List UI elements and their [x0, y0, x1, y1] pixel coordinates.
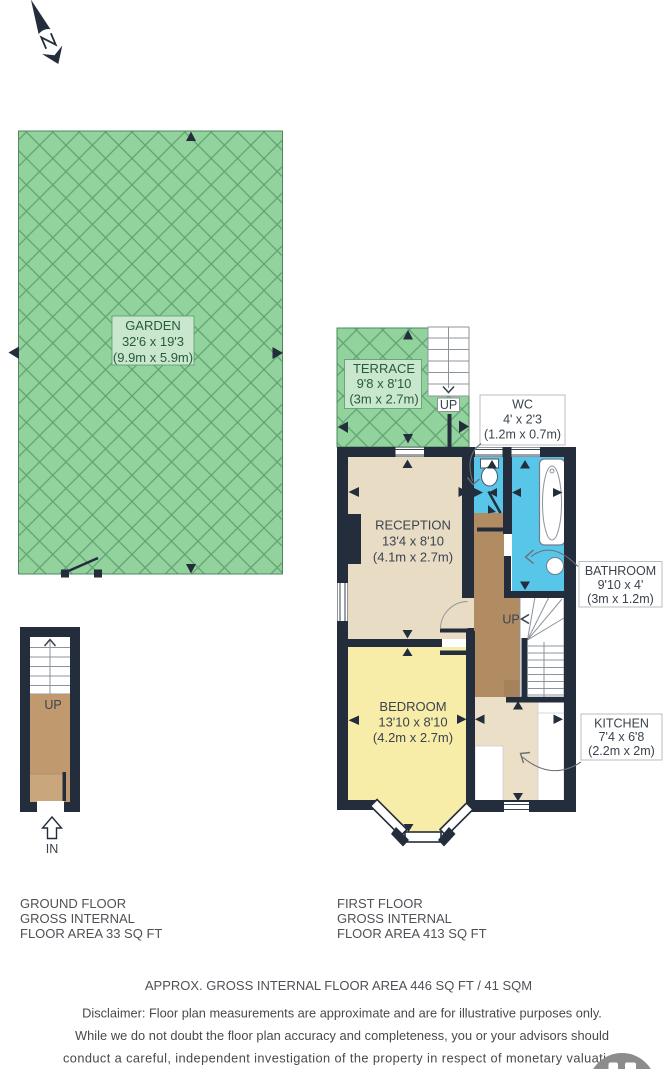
svg-text:GROSS INTERNAL: GROSS INTERNAL — [20, 911, 135, 926]
svg-text:(4.2m x 2.7m): (4.2m x 2.7m) — [373, 730, 453, 745]
svg-text:4' x 2'3: 4' x 2'3 — [503, 413, 542, 427]
svg-text:(2.2m x 2m): (2.2m x 2m) — [588, 744, 655, 758]
svg-text:While we do not doubt the floo: While we do not doubt the floor plan acc… — [75, 1028, 609, 1043]
svg-text:UP: UP — [502, 613, 519, 627]
svg-text:TERRACE: TERRACE — [353, 361, 415, 376]
svg-text:RECEPTION: RECEPTION — [375, 518, 451, 533]
svg-text:WC: WC — [512, 398, 533, 412]
svg-text:32'6 x 19'3: 32'6 x 19'3 — [122, 334, 184, 349]
svg-text:BEDROOM: BEDROOM — [379, 699, 446, 714]
svg-text:Disclaimer: Floor plan measure: Disclaimer: Floor plan measurements are … — [82, 1006, 602, 1021]
svg-text:conduct a careful, independent: conduct a careful, independent investiga… — [63, 1051, 621, 1066]
svg-text:FLOOR AREA 413 SQ FT: FLOOR AREA 413 SQ FT — [337, 926, 487, 941]
svg-text:(9.9m x 5.9m): (9.9m x 5.9m) — [113, 350, 193, 365]
svg-text:BATHROOM: BATHROOM — [585, 564, 656, 578]
svg-text:(3m x 1.2m): (3m x 1.2m) — [587, 592, 654, 606]
svg-text:FLOOR AREA 33 SQ FT: FLOOR AREA 33 SQ FT — [20, 926, 162, 941]
svg-text:7'4 x 6'8: 7'4 x 6'8 — [599, 730, 645, 744]
svg-text:GROSS INTERNAL: GROSS INTERNAL — [337, 911, 452, 926]
svg-text:APPROX. GROSS INTERNAL FLOOR A: APPROX. GROSS INTERNAL FLOOR AREA 446 SQ… — [145, 978, 532, 993]
svg-text:FIRST FLOOR: FIRST FLOOR — [337, 896, 423, 911]
svg-text:13'4 x 8'10: 13'4 x 8'10 — [382, 534, 444, 549]
svg-text:UP: UP — [440, 398, 457, 412]
svg-text:13'10 x 8'10: 13'10 x 8'10 — [378, 715, 447, 730]
svg-text:(1.2m x 0.7m): (1.2m x 0.7m) — [484, 428, 561, 442]
svg-text:9'10 x 4': 9'10 x 4' — [598, 578, 644, 592]
svg-text:GARDEN: GARDEN — [125, 318, 181, 333]
svg-text:KITCHEN: KITCHEN — [594, 717, 649, 731]
svg-text:9'8 x 8'10: 9'8 x 8'10 — [357, 376, 412, 391]
svg-text:GROUND FLOOR: GROUND FLOOR — [20, 896, 126, 911]
svg-text:(4.1m x 2.7m): (4.1m x 2.7m) — [373, 550, 453, 565]
svg-text:(3m x 2.7m): (3m x 2.7m) — [349, 392, 418, 407]
svg-text:IN: IN — [46, 842, 59, 856]
svg-text:UP: UP — [44, 698, 61, 712]
